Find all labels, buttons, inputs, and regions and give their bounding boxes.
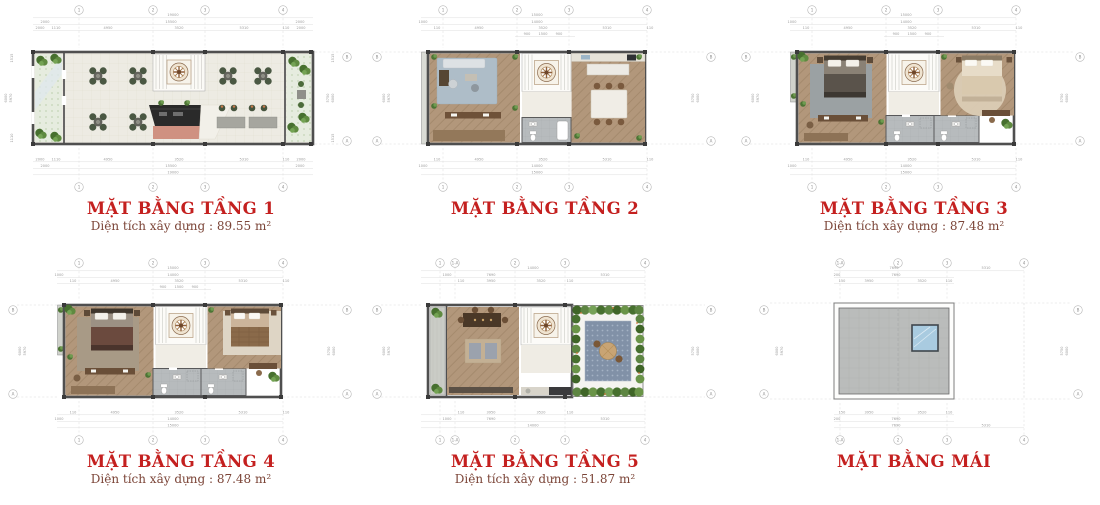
svg-text:3: 3	[564, 261, 567, 266]
svg-text:6000: 6000	[696, 347, 700, 356]
svg-text:3950: 3950	[487, 279, 496, 283]
svg-text:2: 2	[516, 8, 519, 13]
svg-text:2000: 2000	[36, 157, 45, 161]
svg-text:2000: 2000	[297, 157, 306, 161]
svg-text:A: A	[346, 392, 349, 397]
plan-card-tang-4: 1 2 3 4 1 2 3 4 B A B A 15000 1000 14000…	[0, 253, 362, 505]
building	[422, 50, 648, 146]
svg-text:2: 2	[516, 185, 519, 190]
svg-text:4: 4	[282, 185, 285, 190]
svg-text:14000: 14000	[900, 164, 911, 168]
stair-medallion	[167, 60, 191, 84]
svg-text:5970: 5970	[23, 347, 27, 356]
svg-text:200: 200	[834, 417, 841, 421]
svg-text:7690: 7690	[890, 266, 899, 270]
svg-text:1515: 1515	[10, 54, 14, 63]
svg-text:1-A: 1-A	[837, 261, 844, 266]
svg-text:4: 4	[282, 261, 285, 266]
svg-text:110: 110	[946, 410, 953, 414]
svg-text:B: B	[763, 308, 766, 313]
svg-text:3520: 3520	[537, 279, 546, 283]
cabinet	[439, 70, 449, 86]
svg-text:15500: 15500	[165, 20, 176, 24]
svg-text:5310: 5310	[601, 417, 610, 421]
svg-text:3: 3	[568, 8, 571, 13]
svg-text:A: A	[710, 139, 713, 144]
svg-text:1000: 1000	[788, 164, 797, 168]
svg-text:A: A	[376, 139, 379, 144]
svg-text:2: 2	[897, 261, 900, 266]
svg-text:900: 900	[925, 32, 932, 36]
svg-text:1000: 1000	[788, 20, 797, 24]
svg-text:1500: 1500	[539, 32, 548, 36]
svg-text:3520: 3520	[908, 26, 917, 30]
svg-text:1000: 1000	[443, 417, 452, 421]
svg-text:3520: 3520	[918, 279, 927, 283]
plan-title: MẶT BẰNG TẦNG 5	[451, 452, 639, 471]
svg-text:3: 3	[204, 438, 207, 443]
stair-medallion	[902, 61, 926, 85]
roof	[834, 303, 954, 399]
floor-plan-tang-5: 1 1-A 2 3 4 1 1-A 2 3 4 B A B A 14000 10…	[365, 253, 725, 448]
svg-text:110: 110	[803, 157, 810, 161]
svg-text:15000: 15000	[167, 266, 178, 270]
staircase	[153, 54, 205, 91]
svg-text:14000: 14000	[527, 266, 538, 270]
svg-text:2: 2	[514, 261, 517, 266]
svg-text:6000: 6000	[775, 347, 779, 356]
svg-text:2000: 2000	[296, 20, 305, 24]
svg-text:4: 4	[646, 8, 649, 13]
svg-text:1110: 1110	[52, 26, 61, 30]
svg-text:19000: 19000	[167, 13, 178, 17]
svg-text:110: 110	[70, 279, 77, 283]
plan-card-tang-1: 1 2 3 4 1 2 3 4 B A 19000 2000 15500 200…	[0, 0, 362, 253]
svg-text:900: 900	[524, 32, 531, 36]
svg-text:900: 900	[160, 285, 167, 289]
plan-caption: MẶT BẰNG MÁI	[837, 452, 991, 472]
svg-text:110: 110	[70, 410, 77, 414]
rear-garden	[287, 54, 312, 142]
bench	[433, 130, 505, 141]
plan-area: Diện tích xây dựng : 51.87 m²	[451, 472, 639, 486]
svg-text:2: 2	[152, 185, 155, 190]
svg-text:7690: 7690	[892, 417, 901, 421]
svg-text:B: B	[376, 55, 379, 60]
svg-text:B: B	[376, 308, 379, 313]
svg-text:7690: 7690	[487, 273, 496, 277]
svg-text:A: A	[1079, 139, 1082, 144]
svg-text:2000: 2000	[296, 164, 305, 168]
bathrooms	[153, 368, 246, 396]
svg-text:4: 4	[1015, 185, 1018, 190]
svg-text:3520: 3520	[175, 410, 184, 414]
svg-text:3: 3	[204, 8, 207, 13]
svg-text:1000: 1000	[55, 417, 64, 421]
plan-card-tang-5: 1 1-A 2 3 4 1 1-A 2 3 4 B A B A 14000 10…	[362, 253, 728, 505]
svg-text:5750: 5750	[691, 94, 695, 103]
svg-text:3950: 3950	[865, 279, 874, 283]
svg-text:A: A	[346, 139, 349, 144]
svg-text:A: A	[376, 392, 379, 397]
svg-text:5970: 5970	[780, 347, 784, 356]
plan-title: MẶT BẰNG TẦNG 2	[451, 199, 639, 218]
bedroom-1	[64, 305, 153, 396]
stair-medallion	[535, 61, 559, 85]
floor-plan-tang-2: 1 2 3 4 1 2 3 4 B A B A 15000 1000 14000…	[365, 0, 725, 195]
svg-text:A: A	[763, 392, 766, 397]
plan-caption: MẶT BẰNG TẦNG 5 Diện tích xây dựng : 51.…	[451, 452, 639, 486]
svg-text:200: 200	[834, 273, 841, 277]
stove	[627, 55, 636, 61]
svg-text:1-A: 1-A	[452, 261, 459, 266]
svg-text:110: 110	[567, 410, 574, 414]
plan-title: MẶT BẰNG MÁI	[837, 452, 991, 471]
svg-text:5310: 5310	[972, 157, 981, 161]
svg-text:3: 3	[204, 185, 207, 190]
svg-text:4: 4	[1015, 8, 1018, 13]
svg-text:6000: 6000	[1065, 94, 1069, 103]
plan-card-tang-3: 1 2 3 4 1 2 3 4 B A B A 15000 1000 14000…	[728, 0, 1100, 253]
svg-text:1: 1	[439, 438, 442, 443]
svg-text:5310: 5310	[972, 26, 981, 30]
svg-text:110: 110	[283, 410, 290, 414]
svg-text:6000: 6000	[751, 94, 755, 103]
kitchen-dining	[572, 54, 646, 143]
sofa	[443, 59, 485, 68]
skylight	[912, 325, 938, 351]
svg-text:3: 3	[204, 261, 207, 266]
svg-text:15000: 15000	[531, 171, 542, 175]
svg-text:5970: 5970	[387, 94, 391, 103]
svg-text:3520: 3520	[175, 279, 184, 283]
svg-text:15000: 15000	[531, 13, 542, 17]
coffee-table	[465, 74, 477, 81]
svg-text:1-A: 1-A	[837, 438, 844, 443]
bathtub	[557, 121, 568, 140]
svg-text:3520: 3520	[175, 157, 184, 161]
svg-text:4: 4	[282, 8, 285, 13]
laundry-unit	[549, 387, 571, 395]
svg-text:110: 110	[458, 410, 465, 414]
staircase	[522, 54, 571, 118]
svg-text:110: 110	[283, 157, 290, 161]
svg-text:14000: 14000	[167, 417, 178, 421]
svg-text:2: 2	[885, 185, 888, 190]
svg-text:2: 2	[152, 8, 155, 13]
svg-text:2: 2	[152, 438, 155, 443]
svg-text:4950: 4950	[475, 26, 484, 30]
svg-text:4950: 4950	[111, 410, 120, 414]
floor-plan-tang-3: 1 2 3 4 1 2 3 4 B A B A 15000 1000 14000…	[734, 0, 1094, 195]
plan-sheet: 1 2 3 4 1 2 3 4 B A 19000 2000 15500 200…	[0, 0, 1100, 505]
bathrooms	[886, 115, 979, 143]
svg-text:4: 4	[1023, 438, 1026, 443]
svg-text:B: B	[710, 55, 713, 60]
svg-text:B: B	[12, 308, 15, 313]
svg-text:6000: 6000	[696, 94, 700, 103]
svg-text:3520: 3520	[918, 410, 927, 414]
staircase	[889, 54, 940, 116]
svg-text:110: 110	[283, 279, 290, 283]
landing	[522, 92, 571, 118]
svg-text:6000: 6000	[331, 94, 335, 103]
svg-text:4: 4	[1023, 261, 1026, 266]
svg-text:5750: 5750	[691, 347, 695, 356]
svg-text:110: 110	[1016, 26, 1023, 30]
svg-text:7690: 7690	[487, 417, 496, 421]
svg-text:1: 1	[78, 261, 81, 266]
building	[426, 303, 644, 399]
svg-text:6000: 6000	[1065, 347, 1069, 356]
svg-text:4950: 4950	[111, 279, 120, 283]
family-room	[447, 307, 519, 395]
svg-text:1500: 1500	[908, 32, 917, 36]
desk	[249, 363, 277, 369]
front-garden	[35, 54, 62, 142]
svg-text:14000: 14000	[531, 164, 542, 168]
svg-text:1000: 1000	[419, 20, 428, 24]
svg-text:4950: 4950	[844, 26, 853, 30]
svg-text:4950: 4950	[844, 157, 853, 161]
svg-text:15000: 15000	[900, 171, 911, 175]
svg-text:6000: 6000	[382, 347, 386, 356]
svg-text:110: 110	[434, 26, 441, 30]
dining-table	[591, 90, 627, 118]
plan-area: Diện tích xây dựng : 89.55 m²	[87, 219, 275, 233]
svg-text:110: 110	[434, 157, 441, 161]
desk	[982, 110, 1010, 116]
svg-text:5310: 5310	[239, 279, 248, 283]
svg-text:150: 150	[839, 279, 846, 283]
plan-title: MẶT BẰNG TẦNG 4	[87, 452, 275, 471]
headboard	[231, 309, 269, 314]
plan-caption: MẶT BẰNG TẦNG 1 Diện tích xây dựng : 89.…	[87, 199, 275, 233]
svg-text:3520: 3520	[908, 157, 917, 161]
svg-text:1000: 1000	[443, 273, 452, 277]
svg-text:2: 2	[897, 438, 900, 443]
svg-text:110: 110	[647, 26, 654, 30]
svg-text:3520: 3520	[537, 410, 546, 414]
svg-text:5750: 5750	[1060, 347, 1064, 356]
headboard	[962, 56, 1002, 61]
svg-text:6000: 6000	[332, 347, 336, 356]
plan-card-tang-2: 1 2 3 4 1 2 3 4 B A B A 15000 1000 14000…	[362, 0, 728, 253]
svg-text:A: A	[12, 392, 15, 397]
svg-text:3: 3	[937, 185, 940, 190]
svg-text:A: A	[710, 392, 713, 397]
svg-text:110: 110	[647, 157, 654, 161]
svg-text:2000: 2000	[41, 164, 50, 168]
building	[58, 303, 284, 399]
svg-text:3950: 3950	[487, 410, 496, 414]
svg-text:B: B	[1079, 55, 1082, 60]
landing	[521, 345, 571, 373]
svg-text:3520: 3520	[539, 157, 548, 161]
floor-plan-tang-1: 1 2 3 4 1 2 3 4 B A 19000 2000 15500 200…	[1, 0, 361, 195]
svg-text:5310: 5310	[982, 266, 991, 270]
svg-text:1500: 1500	[175, 285, 184, 289]
bench	[804, 133, 848, 141]
svg-text:900: 900	[556, 32, 563, 36]
landing	[889, 92, 940, 116]
svg-text:15000: 15000	[167, 424, 178, 428]
svg-text:1: 1	[78, 185, 81, 190]
svg-text:19000: 19000	[167, 171, 178, 175]
svg-text:15000: 15000	[900, 13, 911, 17]
svg-text:110: 110	[458, 279, 465, 283]
svg-text:1: 1	[442, 185, 445, 190]
svg-text:2000: 2000	[297, 26, 306, 30]
svg-text:3: 3	[564, 438, 567, 443]
island	[587, 64, 629, 75]
svg-text:4: 4	[644, 438, 647, 443]
svg-text:5750: 5750	[326, 94, 330, 103]
plan-caption: MẶT BẰNG TẦNG 3 Diện tích xây dựng : 87.…	[820, 199, 1008, 233]
svg-text:6000: 6000	[4, 94, 8, 103]
bathroom	[522, 118, 571, 143]
svg-text:1: 1	[811, 8, 814, 13]
svg-text:3: 3	[946, 261, 949, 266]
bench	[449, 387, 513, 393]
svg-text:4: 4	[282, 438, 285, 443]
svg-text:B: B	[346, 55, 349, 60]
roof-terrace	[572, 305, 645, 396]
bench	[71, 386, 115, 394]
svg-text:1: 1	[442, 8, 445, 13]
svg-text:5310: 5310	[601, 273, 610, 277]
svg-text:900: 900	[192, 285, 199, 289]
stair-medallion	[169, 314, 193, 338]
svg-text:14000: 14000	[527, 424, 538, 428]
svg-text:2000: 2000	[36, 26, 45, 30]
svg-text:6000: 6000	[382, 94, 386, 103]
svg-text:5750: 5750	[1060, 94, 1064, 103]
svg-text:110: 110	[946, 279, 953, 283]
svg-text:3520: 3520	[539, 26, 548, 30]
svg-text:5750: 5750	[327, 347, 331, 356]
svg-text:1000: 1000	[419, 164, 428, 168]
svg-text:5970: 5970	[756, 94, 760, 103]
svg-text:5310: 5310	[239, 410, 248, 414]
blanket	[962, 76, 1002, 95]
building	[791, 50, 1017, 146]
svg-text:4950: 4950	[104, 157, 113, 161]
svg-text:14000: 14000	[531, 20, 542, 24]
svg-text:5310: 5310	[603, 26, 612, 30]
svg-text:1110: 1110	[10, 134, 14, 143]
landing	[156, 345, 207, 369]
svg-text:1: 1	[439, 261, 442, 266]
svg-text:1110: 1110	[52, 157, 61, 161]
svg-text:1: 1	[78, 8, 81, 13]
svg-text:5310: 5310	[603, 157, 612, 161]
svg-text:1000: 1000	[55, 273, 64, 277]
svg-text:B: B	[1077, 308, 1080, 313]
svg-text:110: 110	[567, 279, 574, 283]
svg-text:5310: 5310	[240, 157, 249, 161]
svg-text:1515: 1515	[331, 54, 335, 63]
kitchen-sink	[581, 55, 590, 60]
svg-text:3520: 3520	[175, 26, 184, 30]
svg-text:3950: 3950	[865, 410, 874, 414]
bedroom-1	[797, 52, 886, 143]
svg-text:150: 150	[839, 410, 846, 414]
side-balcony	[430, 307, 445, 395]
stair-medallion	[534, 314, 558, 338]
svg-text:4950: 4950	[475, 157, 484, 161]
svg-text:2: 2	[152, 261, 155, 266]
staircase	[156, 307, 207, 369]
svg-text:1-A: 1-A	[452, 438, 459, 443]
svg-text:2: 2	[514, 438, 517, 443]
svg-text:4950: 4950	[104, 26, 113, 30]
plan-card-mai: 1-A 2 3 4 1-A 2 3 4 B A B A 7690 5310 20…	[728, 253, 1100, 505]
headboard	[91, 309, 133, 314]
svg-text:3: 3	[568, 185, 571, 190]
svg-text:14000: 14000	[167, 273, 178, 277]
svg-text:2000: 2000	[41, 20, 50, 24]
svg-text:5970: 5970	[9, 94, 13, 103]
svg-text:A: A	[1077, 392, 1080, 397]
plan-title: MẶT BẰNG TẦNG 3	[820, 199, 1008, 218]
svg-text:7690: 7690	[892, 273, 901, 277]
floor-plan-mai: 1-A 2 3 4 1-A 2 3 4 B A B A 7690 5310 20…	[734, 253, 1094, 448]
svg-text:1515: 1515	[331, 134, 335, 143]
svg-text:4: 4	[644, 261, 647, 266]
plan-caption: MẶT BẰNG TẦNG 2	[451, 199, 639, 219]
svg-text:900: 900	[893, 32, 900, 36]
plan-caption: MẶT BẰNG TẦNG 4 Diện tích xây dựng : 87.…	[87, 452, 275, 486]
svg-text:15500: 15500	[165, 164, 176, 168]
svg-text:14000: 14000	[900, 20, 911, 24]
svg-text:5310: 5310	[982, 424, 991, 428]
living-room	[430, 54, 521, 143]
plan-title: MẶT BẰNG TẦNG 1	[87, 199, 275, 218]
headboard	[824, 56, 866, 61]
svg-text:4: 4	[646, 185, 649, 190]
floor-plan-tang-4: 1 2 3 4 1 2 3 4 B A B A 15000 1000 14000…	[1, 253, 361, 448]
svg-text:110: 110	[1016, 157, 1023, 161]
svg-text:1: 1	[78, 438, 81, 443]
svg-text:B: B	[745, 55, 748, 60]
building	[31, 50, 313, 146]
svg-text:B: B	[710, 308, 713, 313]
svg-text:3: 3	[937, 8, 940, 13]
svg-text:6000: 6000	[18, 347, 22, 356]
svg-text:110: 110	[283, 26, 290, 30]
svg-text:5970: 5970	[387, 347, 391, 356]
svg-text:110: 110	[803, 26, 810, 30]
svg-text:B: B	[346, 308, 349, 313]
svg-text:7690: 7690	[892, 424, 901, 428]
plan-area: Diện tích xây dựng : 87.48 m²	[87, 472, 275, 486]
svg-text:2: 2	[885, 8, 888, 13]
svg-text:3: 3	[946, 438, 949, 443]
svg-text:A: A	[745, 139, 748, 144]
svg-text:1: 1	[811, 185, 814, 190]
plan-area: Diện tích xây dựng : 87.48 m²	[820, 219, 1008, 233]
svg-text:5310: 5310	[240, 26, 249, 30]
